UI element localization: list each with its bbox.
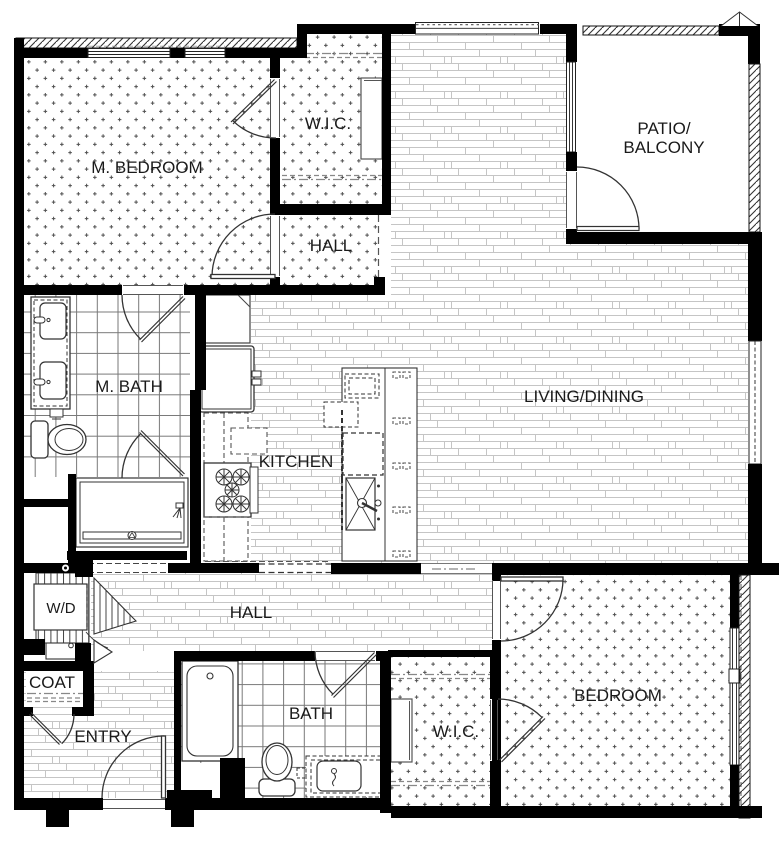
svg-text:M. BEDROOM: M. BEDROOM xyxy=(91,158,202,177)
svg-text:COAT: COAT xyxy=(29,673,75,692)
svg-text:W.I.C.: W.I.C. xyxy=(433,722,479,741)
svg-text:HALL: HALL xyxy=(230,603,273,622)
svg-text:BALCONY: BALCONY xyxy=(623,138,704,157)
svg-text:W/D: W/D xyxy=(46,600,75,617)
svg-text:PATIO/: PATIO/ xyxy=(637,119,690,138)
svg-text:W.I.C.: W.I.C. xyxy=(305,114,351,133)
svg-text:BATH: BATH xyxy=(289,704,333,723)
svg-text:ENTRY: ENTRY xyxy=(74,727,131,746)
svg-text:HALL: HALL xyxy=(310,236,353,255)
svg-text:KITCHEN: KITCHEN xyxy=(259,452,334,471)
svg-text:LIVING/DINING: LIVING/DINING xyxy=(524,387,644,406)
svg-text:BEDROOM: BEDROOM xyxy=(574,686,662,705)
svg-text:M. BATH: M. BATH xyxy=(95,377,163,396)
